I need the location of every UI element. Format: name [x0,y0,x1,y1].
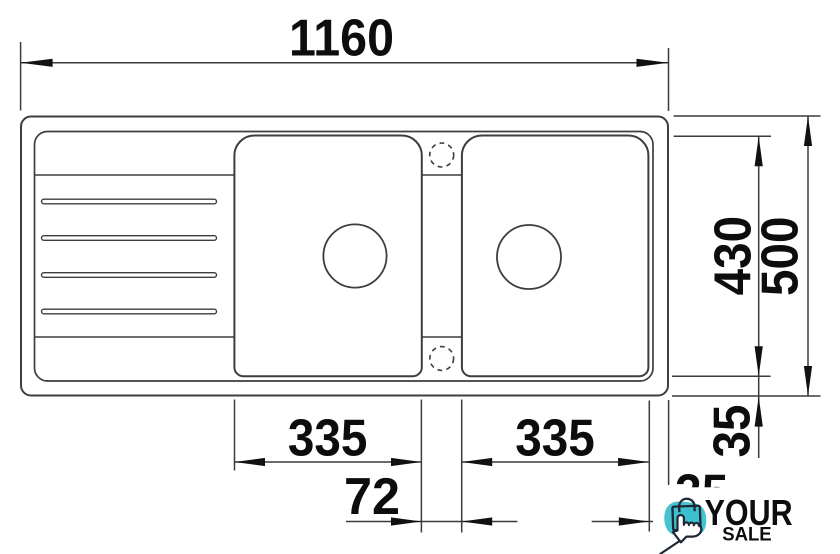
svg-text:1160: 1160 [289,9,394,67]
svg-text:35: 35 [703,405,761,458]
svg-text:500: 500 [752,217,810,297]
svg-text:SALE: SALE [722,524,772,545]
svg-text:335: 335 [515,410,595,468]
svg-text:335: 335 [288,410,368,468]
svg-text:72: 72 [344,468,400,526]
